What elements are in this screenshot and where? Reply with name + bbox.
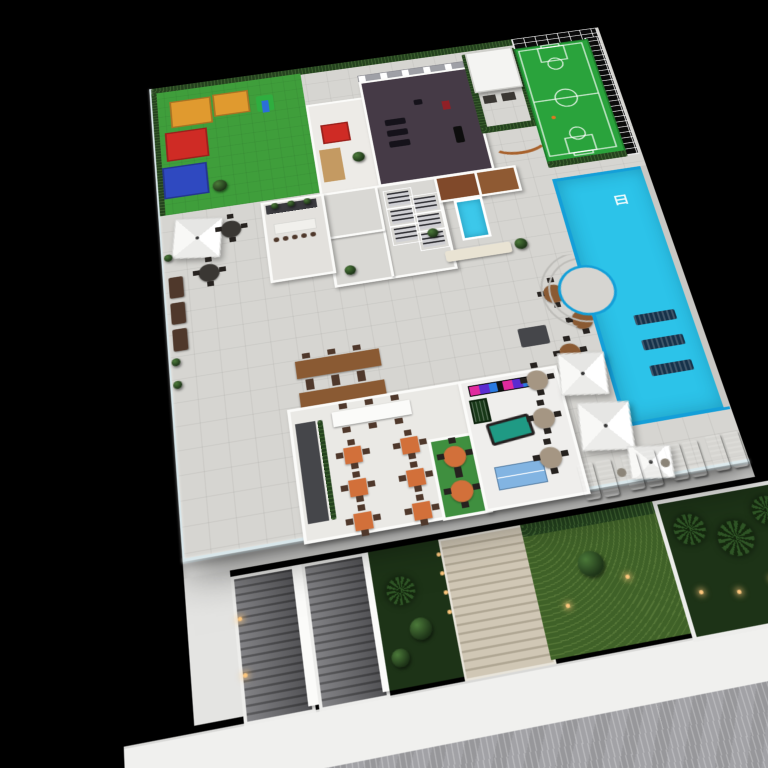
site-plan-3d [50, 0, 768, 768]
kids-slide-chute [261, 100, 269, 113]
planter-pot [513, 237, 528, 250]
render-canvas [0, 0, 768, 768]
shrub [390, 647, 411, 669]
pool-umbrella [557, 352, 610, 396]
party-table-orange [343, 446, 363, 465]
terrace-table [501, 92, 517, 102]
treadmill [389, 139, 411, 148]
terrace-bench [172, 328, 188, 352]
massage-room [474, 165, 523, 197]
treadmill [384, 117, 406, 126]
garden-light [625, 574, 630, 579]
party-table-orange [412, 501, 433, 521]
terrace-bench [168, 276, 184, 299]
outdoor-bar-island [517, 325, 550, 348]
courtyard-round-table [442, 444, 469, 469]
kids-room-wood-floor [319, 147, 346, 182]
bar-stools [273, 237, 279, 242]
kids-room-red-mat [320, 122, 351, 145]
railing-planter [164, 254, 173, 262]
plunge-pool [453, 197, 491, 241]
terrace-round-table [220, 219, 242, 238]
palm-tree [713, 518, 759, 559]
play-mat-blue [162, 162, 210, 200]
party-table-orange [406, 468, 427, 487]
amenity-deck [149, 27, 750, 562]
billiards-table [485, 413, 535, 446]
weight-rack [453, 126, 466, 143]
foosball-table [469, 398, 492, 424]
garden-tree [575, 549, 607, 579]
railing-planter [173, 380, 183, 389]
gourmet-kitchen [260, 194, 336, 284]
interior-wall [330, 229, 385, 240]
shrub [408, 616, 434, 642]
terrace-table [483, 94, 498, 104]
terrace-umbrella [171, 217, 222, 259]
palm-tree [670, 512, 710, 548]
play-mat-red [165, 127, 210, 162]
garden-light [699, 590, 705, 595]
courtyard-round-table [448, 478, 475, 503]
bar-island [273, 218, 317, 235]
railing-planter [171, 358, 180, 367]
palm-tree [384, 574, 417, 607]
treadmill [387, 128, 409, 137]
lounge-sofa [445, 241, 513, 262]
exercise-bench [413, 99, 423, 105]
indoor-plant [344, 265, 357, 276]
terrace-bench [170, 302, 186, 326]
play-mat-orange [212, 90, 251, 117]
shrub [212, 179, 228, 192]
indoor-plant [352, 151, 366, 162]
long-dining-table [295, 348, 382, 379]
playground [151, 74, 319, 217]
garden-light [736, 589, 742, 594]
garden-light [565, 603, 570, 608]
pool-umbrella [577, 401, 636, 452]
party-table-orange [353, 511, 374, 531]
palm-tree [748, 494, 768, 527]
ping-pong-table [494, 459, 548, 491]
party-table-orange [400, 436, 420, 455]
terrace-round-table [198, 263, 220, 283]
play-mat-orange [169, 96, 213, 128]
long-white-table [332, 400, 412, 428]
weight-machine [441, 100, 451, 110]
party-table-orange [348, 478, 368, 498]
